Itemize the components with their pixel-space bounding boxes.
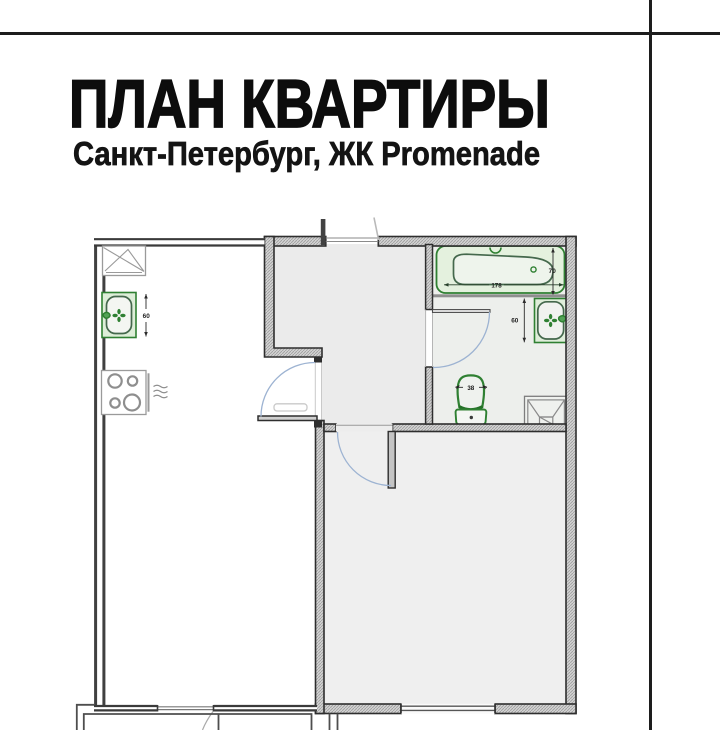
svg-text:38: 38 bbox=[467, 385, 474, 392]
svg-text:60: 60 bbox=[511, 318, 519, 325]
svg-text:60: 60 bbox=[143, 313, 151, 320]
svg-text:178: 178 bbox=[491, 282, 502, 289]
svg-text:70: 70 bbox=[549, 268, 557, 275]
